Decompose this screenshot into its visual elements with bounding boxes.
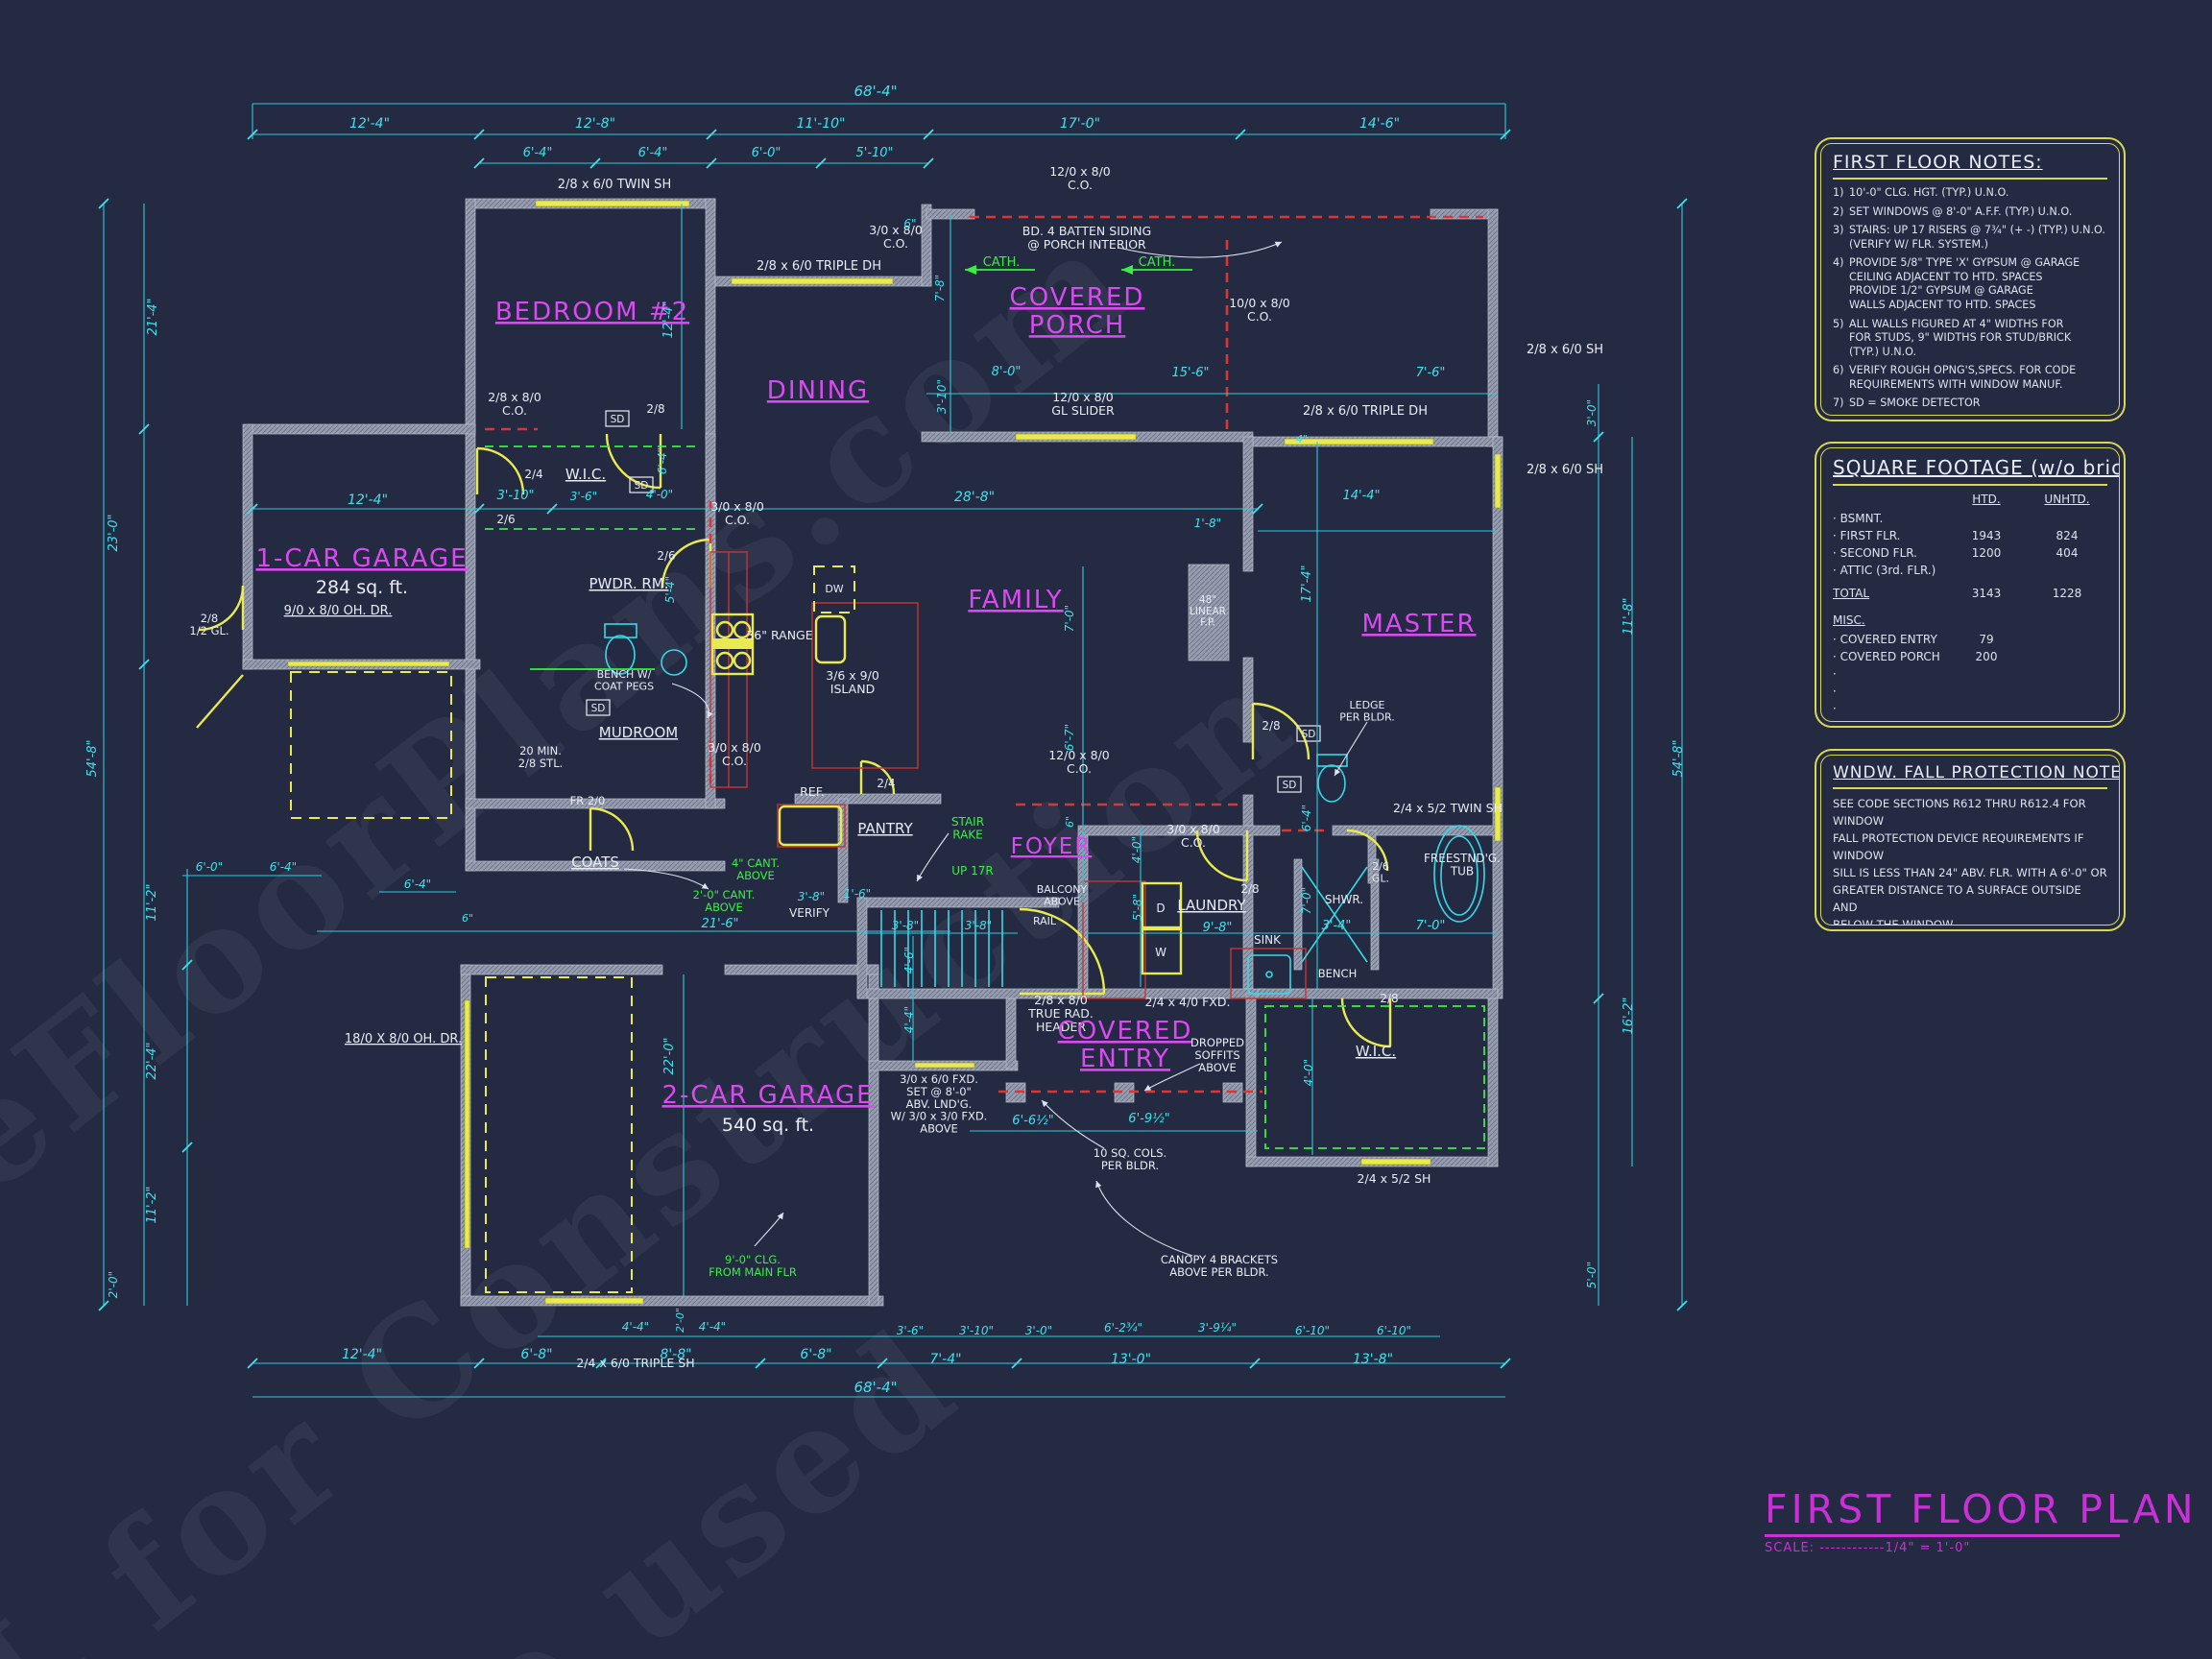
plan-label: 6'-4" — [270, 860, 297, 874]
plan-label: SD — [611, 414, 625, 425]
plan-label: 4" CANT.ABOVE — [732, 856, 780, 882]
plan-label: 6'-4" — [638, 146, 668, 160]
plan-label: W.I.C. — [565, 466, 606, 483]
plan-label: 21'-4" — [146, 298, 160, 335]
plan-label: 10/0 x 8/0C.O. — [1229, 296, 1290, 324]
plan-label: 13'-8" — [1353, 1352, 1393, 1367]
plan-label: 68'-4" — [854, 83, 897, 100]
plan-label: 2/4 x 4/0 FXD. — [1145, 995, 1231, 1009]
plan-label: 6'-10" — [1295, 1324, 1330, 1337]
plan-label: BENCH — [1318, 967, 1357, 980]
plan-label: 12'-4" — [349, 116, 390, 132]
plan-label: FR 2/0 — [570, 794, 606, 807]
note-item: 3)STAIRS: UP 17 RISERS @ 7¾" (+ -) (TYP.… — [1833, 224, 2107, 252]
plan-label: 3/6 x 9/0ISLAND — [826, 668, 879, 696]
blueprint-page: { "panels": { "first_floor_notes": { "ti… — [0, 0, 2212, 1659]
plan-label: CANOPY 4 BRACKETSABOVE PER BLDR. — [1161, 1253, 1278, 1279]
note-item: 7)SD = SMOKE DETECTOR — [1833, 397, 2107, 411]
plan-label: 14'-6" — [1359, 116, 1400, 132]
plan-label: 1'-6" — [844, 887, 871, 901]
total-htd: 3143 — [1946, 587, 2027, 600]
sqft-row: · COVERED PORCH200 — [1833, 650, 2107, 663]
plan-label: 17'-0" — [1060, 116, 1100, 132]
plan-label: 7'-0" — [1416, 919, 1446, 933]
plan-label: 11'-2" — [145, 883, 159, 921]
plan-label: 54'-8" — [85, 739, 100, 777]
plan-label: 2-CAR GARAGE — [661, 1081, 874, 1110]
plan-label: SHWR. — [1325, 893, 1363, 906]
plan-label: VERIFY — [789, 906, 830, 920]
plan-label: 4'-0" — [1302, 1059, 1315, 1086]
plan-label: 3/0 x 6/0 FXD.SET @ 8'-0"ABV. LND'G.W/ 3… — [891, 1072, 988, 1136]
plan-label: 284 sq. ft. — [316, 577, 408, 598]
plan-label: SD — [1302, 729, 1316, 740]
plan-label: 3/0 x 8/0C.O. — [708, 740, 761, 768]
plan-label: 7'-4" — [929, 1352, 961, 1367]
plan-label: 22'-4" — [145, 1042, 159, 1079]
plan-label: 18/0 X 8/0 OH. DR. — [345, 1032, 462, 1046]
plan-label: UP 17R — [951, 864, 993, 878]
plan-label: 11'-2" — [145, 1186, 159, 1223]
plan-label: DROPPEDSOFFITSABOVE — [1190, 1036, 1244, 1074]
plan-label: 12/0 x 8/0GL SLIDER — [1051, 390, 1115, 418]
plan-label: COVEREDPORCH — [1010, 283, 1145, 340]
sqft-row: · — [1833, 702, 2107, 715]
column-unhtd: UNHTD. — [2027, 493, 2107, 506]
title-block: FIRST FLOOR PLAN SCALE: ------------1/4"… — [1765, 1486, 2120, 1555]
plan-label: 3'-10" — [935, 379, 949, 414]
plan-label: 5'-8" — [1131, 894, 1144, 921]
plan-label: 11'-8" — [1622, 597, 1636, 635]
plan-label: W — [1155, 946, 1166, 959]
total-unhtd: 1228 — [2027, 587, 2107, 600]
plan-label: 14'-4" — [1342, 489, 1380, 503]
sqft-row: · FIRST FLR.1943824 — [1833, 529, 2107, 542]
misc-rows: · COVERED ENTRY79· COVERED PORCH200··· — [1833, 633, 2107, 715]
plan-label: MUDROOM — [599, 724, 678, 741]
plan-label: 16'-2" — [1622, 997, 1636, 1034]
plan-label: 3'-8" — [798, 890, 825, 903]
plan-label: 4'-0" — [1130, 836, 1143, 863]
plan-label: BENCH W/COAT PEGS — [594, 668, 654, 692]
plan-label: 6'-4" — [523, 146, 553, 160]
plan-label: DINING — [767, 376, 869, 405]
plan-label: 8'-0" — [992, 365, 1022, 379]
plan-label: 2/4 — [524, 468, 542, 481]
plan-label: 12'-4" — [661, 301, 676, 338]
sqft-row: · BSMNT. — [1833, 512, 2107, 525]
plan-label: PWDR. RM. — [589, 575, 669, 592]
plan-label: 540 sq. ft. — [722, 1115, 814, 1136]
plan-label: 15'-6" — [1171, 366, 1209, 380]
square-footage-rows: · BSMNT.· FIRST FLR.1943824· SECOND FLR.… — [1833, 512, 2107, 577]
plan-label: 6'-6½" — [1012, 1114, 1053, 1128]
plan-label: 11'-10" — [797, 116, 846, 132]
plan-label: 21'-6" — [701, 917, 738, 931]
plan-label: 2/8 — [1240, 882, 1259, 896]
plan-label: FREESTND'G.TUB — [1424, 852, 1501, 878]
plan-label: 2/81/2 GL. — [189, 612, 228, 637]
plan-label: 23'-0" — [107, 514, 121, 551]
plan-label: 22'-0" — [662, 1037, 677, 1074]
sqft-row: · — [1833, 685, 2107, 698]
plan-label: 5'-0" — [1585, 1262, 1599, 1288]
window-fall-protection-body: SEE CODE SECTIONS R612 THRU R612.4 FOR W… — [1833, 796, 2107, 926]
plan-label: PANTRY — [857, 820, 913, 837]
plan-label: 7'-0" — [1063, 605, 1076, 632]
plan-label: 3'-4" — [1322, 919, 1352, 933]
note-item: 5)ALL WALLS FIGURED AT 4" WIDTHS FOR FOR… — [1833, 318, 2107, 360]
misc-label: MISC. — [1833, 613, 2107, 627]
plan-label: SD — [1283, 780, 1297, 791]
square-footage-table: HTD. UNHTD. · BSMNT.· FIRST FLR.1943824·… — [1833, 493, 2107, 715]
plan-label: 2/4 — [877, 777, 895, 790]
plan-label: 2/8 x 6/0 TRIPLE DH — [757, 259, 881, 274]
plan-label: 5'-10" — [855, 146, 893, 160]
plan-label: 4'-0" — [646, 488, 673, 501]
plan-label: FOYER — [1011, 834, 1093, 859]
plan-label: BD. 4 BATTEN SIDING@ PORCH INTERIOR — [1022, 224, 1151, 252]
plan-label: 1'-8" — [1194, 517, 1221, 530]
plan-label: 4" — [1296, 433, 1308, 445]
sqft-row: · — [1833, 667, 2107, 681]
square-footage-title: SQUARE FOOTAGE (w/o brick) — [1833, 456, 2107, 486]
note-item: 4)PROVIDE 5/8" TYPE 'X' GYPSUM @ GARAGE … — [1833, 256, 2107, 312]
plan-label: BEDROOM #2 — [495, 298, 689, 326]
plan-label: 6" — [462, 912, 473, 925]
plan-label: 12'-8" — [575, 116, 615, 132]
plan-label: 4'-4" — [902, 1006, 916, 1033]
plan-label: 9/0 x 8/0 OH. DR. — [284, 604, 393, 618]
plan-label: CATH. — [1139, 255, 1176, 270]
plan-label: 2/8 x 6/0 SH — [1527, 463, 1603, 477]
plan-label: 6'-2¾" — [1104, 1321, 1142, 1334]
note-item: 6)VERIFY ROUGH OPNG'S,SPECS. FOR CODE RE… — [1833, 364, 2107, 392]
plan-label: 8'-8" — [660, 1347, 691, 1362]
plan-label: 68'-4" — [854, 1379, 897, 1396]
plan-label: 1-CAR GARAGE — [255, 544, 468, 573]
plan-label: 6'-0" — [196, 860, 223, 874]
plan-label: 6" — [903, 217, 916, 230]
plan-label: 13'-0" — [1111, 1352, 1151, 1367]
plan-label: 6'-8" — [520, 1347, 552, 1362]
plan-label: MASTER — [1361, 610, 1476, 638]
plan-label: 6'-7" — [1063, 724, 1076, 751]
plan-label: 4'-6" — [902, 947, 916, 974]
total-label: TOTAL — [1833, 587, 1946, 600]
plan-label: 3'-10" — [959, 1324, 994, 1337]
plan-label: 2'-0" — [107, 1271, 120, 1298]
note-item: 2)SET WINDOWS @ 8'-0" A.F.F. (TYP.) U.N.… — [1833, 205, 2107, 220]
plan-label: 6'-4" — [404, 878, 431, 891]
plan-label: 7'-8" — [933, 275, 947, 301]
plan-label: 6'-8" — [800, 1347, 831, 1362]
plan-label: 4'-4" — [622, 1320, 649, 1334]
dimension-lines — [99, 104, 1687, 1397]
square-footage-total-row: TOTAL 3143 1228 — [1833, 587, 2107, 600]
window-fall-protection-title: WNDW. FALL PROTECTION NOTES: — [1833, 763, 2107, 789]
column-htd: HTD. — [1946, 493, 2027, 506]
plan-label: 2/6GL. — [1372, 860, 1389, 884]
sqft-row: · COVERED ENTRY79 — [1833, 633, 2107, 646]
plan-label: 2/6 — [657, 549, 675, 563]
plan-label: 6'-4" — [656, 447, 669, 474]
first-floor-notes-panel: FIRST FLOOR NOTES: 1)10'-0" CLG. HGT. (T… — [1815, 137, 2126, 421]
plan-label: 28'-8" — [954, 490, 995, 505]
plan-label: 3'-6" — [897, 1324, 924, 1337]
plan-label: 3'-10" — [496, 489, 534, 503]
square-footage-header: HTD. UNHTD. — [1833, 493, 2107, 506]
plan-label: 10 SQ. COLS.PER BLDR. — [1094, 1146, 1166, 1172]
plan-label: 6'-0" — [752, 146, 781, 160]
plan-label: 6'-4" — [1300, 805, 1313, 831]
plan-label: 6" — [1064, 816, 1076, 828]
plan-label: 36" RANGE — [746, 628, 812, 642]
first-floor-notes-list: 1)10'-0" CLG. HGT. (TYP.) U.N.O.2)SET WI… — [1833, 186, 2107, 416]
plan-label: 5'-4" — [663, 576, 677, 603]
plan-label: 2/4 x 5/2 TWIN SH — [1393, 801, 1503, 815]
plan-label: 2/8 — [1262, 719, 1280, 733]
plan-label: BALCONYABOVE — [1037, 883, 1088, 907]
plan-label: 3'-9¼" — [1198, 1321, 1237, 1334]
plan-label: 12/0 x 8/0C.O. — [1049, 164, 1111, 192]
plan-label: FAMILY — [968, 586, 1063, 614]
plan-label: 2/8 x 6/0 TRIPLE DH — [1303, 404, 1428, 419]
plan-label: REF. — [800, 784, 825, 799]
plan-label: 3'-6" — [570, 490, 597, 503]
note-item: 1)10'-0" CLG. HGT. (TYP.) U.N.O. — [1833, 186, 2107, 201]
sheet-title: FIRST FLOOR PLAN — [1765, 1486, 2120, 1537]
plan-label: 2/8 x 6/0 TWIN SH — [558, 178, 671, 192]
plan-label: LAUNDRY — [1177, 897, 1246, 914]
plan-label: 9'-8" — [1203, 921, 1233, 935]
plan-label: 6'-10" — [1377, 1324, 1411, 1337]
plan-label: COVEREDENTRY — [1058, 1017, 1193, 1073]
plan-label: 20 MIN.2/8 STL. — [518, 744, 564, 770]
sqft-row: · SECOND FLR.1200404 — [1833, 546, 2107, 560]
square-footage-panel: SQUARE FOOTAGE (w/o brick) HTD. UNHTD. ·… — [1815, 442, 2126, 728]
plan-label: 2/8 — [646, 402, 664, 416]
plan-label: SD — [591, 703, 606, 714]
plan-label: 9'-0" CLG.FROM MAIN FLR — [709, 1253, 797, 1279]
first-floor-notes-title: FIRST FLOOR NOTES: — [1833, 152, 2107, 180]
sheet-scale: SCALE: ------------1/4" = 1'-0" — [1765, 1541, 2120, 1555]
plan-label: 2/6 — [496, 513, 515, 526]
plan-label: 2'-0" — [674, 1308, 686, 1333]
plan-label: 54'-8" — [1671, 739, 1686, 777]
plan-label: SINK — [1254, 933, 1282, 947]
plan-label: LEDGEPER BLDR. — [1339, 699, 1395, 723]
plan-label: 3'-8" — [892, 919, 919, 932]
plan-label: 2/8 — [1380, 992, 1398, 1005]
window-fall-protection-panel: WNDW. FALL PROTECTION NOTES: SEE CODE SE… — [1815, 749, 2126, 931]
plan-label: 3'-0" — [1585, 399, 1599, 426]
plan-label: RAIL — [1033, 915, 1057, 927]
plan-label: D — [1156, 902, 1165, 915]
plan-label: COATS — [571, 854, 619, 871]
plan-label: 12'-4" — [342, 1347, 382, 1362]
plan-label: 2/4 x 5/2 SH — [1358, 1171, 1431, 1186]
plan-label: 2'-0" CANT.ABOVE — [693, 888, 756, 914]
plan-label: W.I.C. — [1356, 1043, 1396, 1060]
plan-label: 7'-6" — [1416, 366, 1446, 380]
plan-label: 12'-4" — [348, 493, 388, 508]
sqft-row: · ATTIC (3rd. FLR.) — [1833, 564, 2107, 577]
plan-label: CATH. — [983, 255, 1021, 270]
plan-label: 2/8 x 8/0C.O. — [488, 390, 541, 418]
plan-label: 4'-4" — [699, 1320, 726, 1334]
plan-label: STAIRRAKE — [951, 815, 984, 841]
plan-label: 3'-0" — [1025, 1324, 1052, 1337]
plan-label: 2/8 x 6/0 SH — [1527, 343, 1603, 357]
plan-label: 7'-0" — [1300, 887, 1313, 914]
plan-label: DW — [825, 583, 843, 595]
plan-label: 3'-8" — [965, 919, 992, 932]
plan-label: 17'-4" — [1300, 565, 1314, 602]
plan-label: 6'-9½" — [1128, 1112, 1169, 1126]
